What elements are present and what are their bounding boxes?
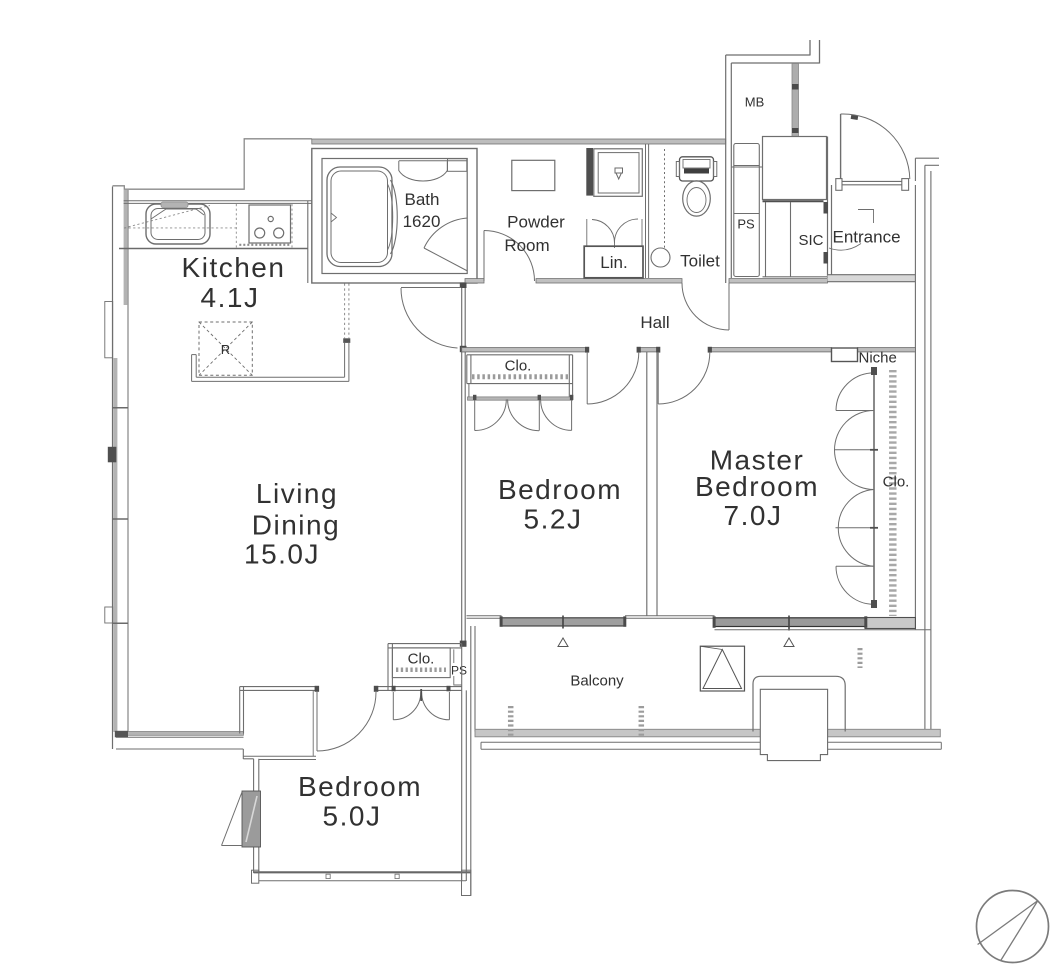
svg-text:SIC: SIC (798, 232, 823, 249)
svg-text:4.1J: 4.1J (201, 282, 260, 313)
svg-text:5.2J: 5.2J (524, 504, 583, 535)
svg-text:R: R (221, 342, 230, 357)
svg-text:MB: MB (745, 95, 765, 110)
svg-text:Powder: Powder (507, 213, 565, 232)
svg-text:Bedroom: Bedroom (298, 771, 422, 802)
svg-text:5.0J: 5.0J (323, 801, 382, 832)
svg-text:Niche: Niche (859, 350, 897, 367)
svg-text:Clo.: Clo. (883, 474, 910, 491)
svg-text:Bath: Bath (405, 190, 440, 209)
svg-text:15.0J: 15.0J (244, 539, 320, 570)
svg-text:Entrance: Entrance (833, 228, 901, 247)
svg-text:Kitchen: Kitchen (182, 252, 286, 283)
svg-text:Bedroom: Bedroom (498, 474, 622, 505)
svg-text:Balcony: Balcony (570, 673, 624, 690)
svg-text:Room: Room (504, 236, 549, 255)
svg-text:Dining: Dining (252, 510, 340, 541)
svg-text:7.0J: 7.0J (724, 500, 783, 531)
svg-text:Living: Living (256, 478, 338, 509)
svg-text:PS: PS (451, 664, 467, 678)
svg-text:Hall: Hall (640, 313, 669, 332)
svg-text:Bedroom: Bedroom (695, 471, 819, 502)
svg-text:Lin.: Lin. (600, 253, 627, 272)
svg-text:Clo.: Clo. (408, 651, 435, 668)
svg-text:Toilet: Toilet (680, 252, 720, 271)
svg-text:1620: 1620 (403, 212, 441, 231)
svg-text:PS: PS (737, 217, 755, 232)
svg-text:Clo.: Clo. (505, 358, 532, 375)
